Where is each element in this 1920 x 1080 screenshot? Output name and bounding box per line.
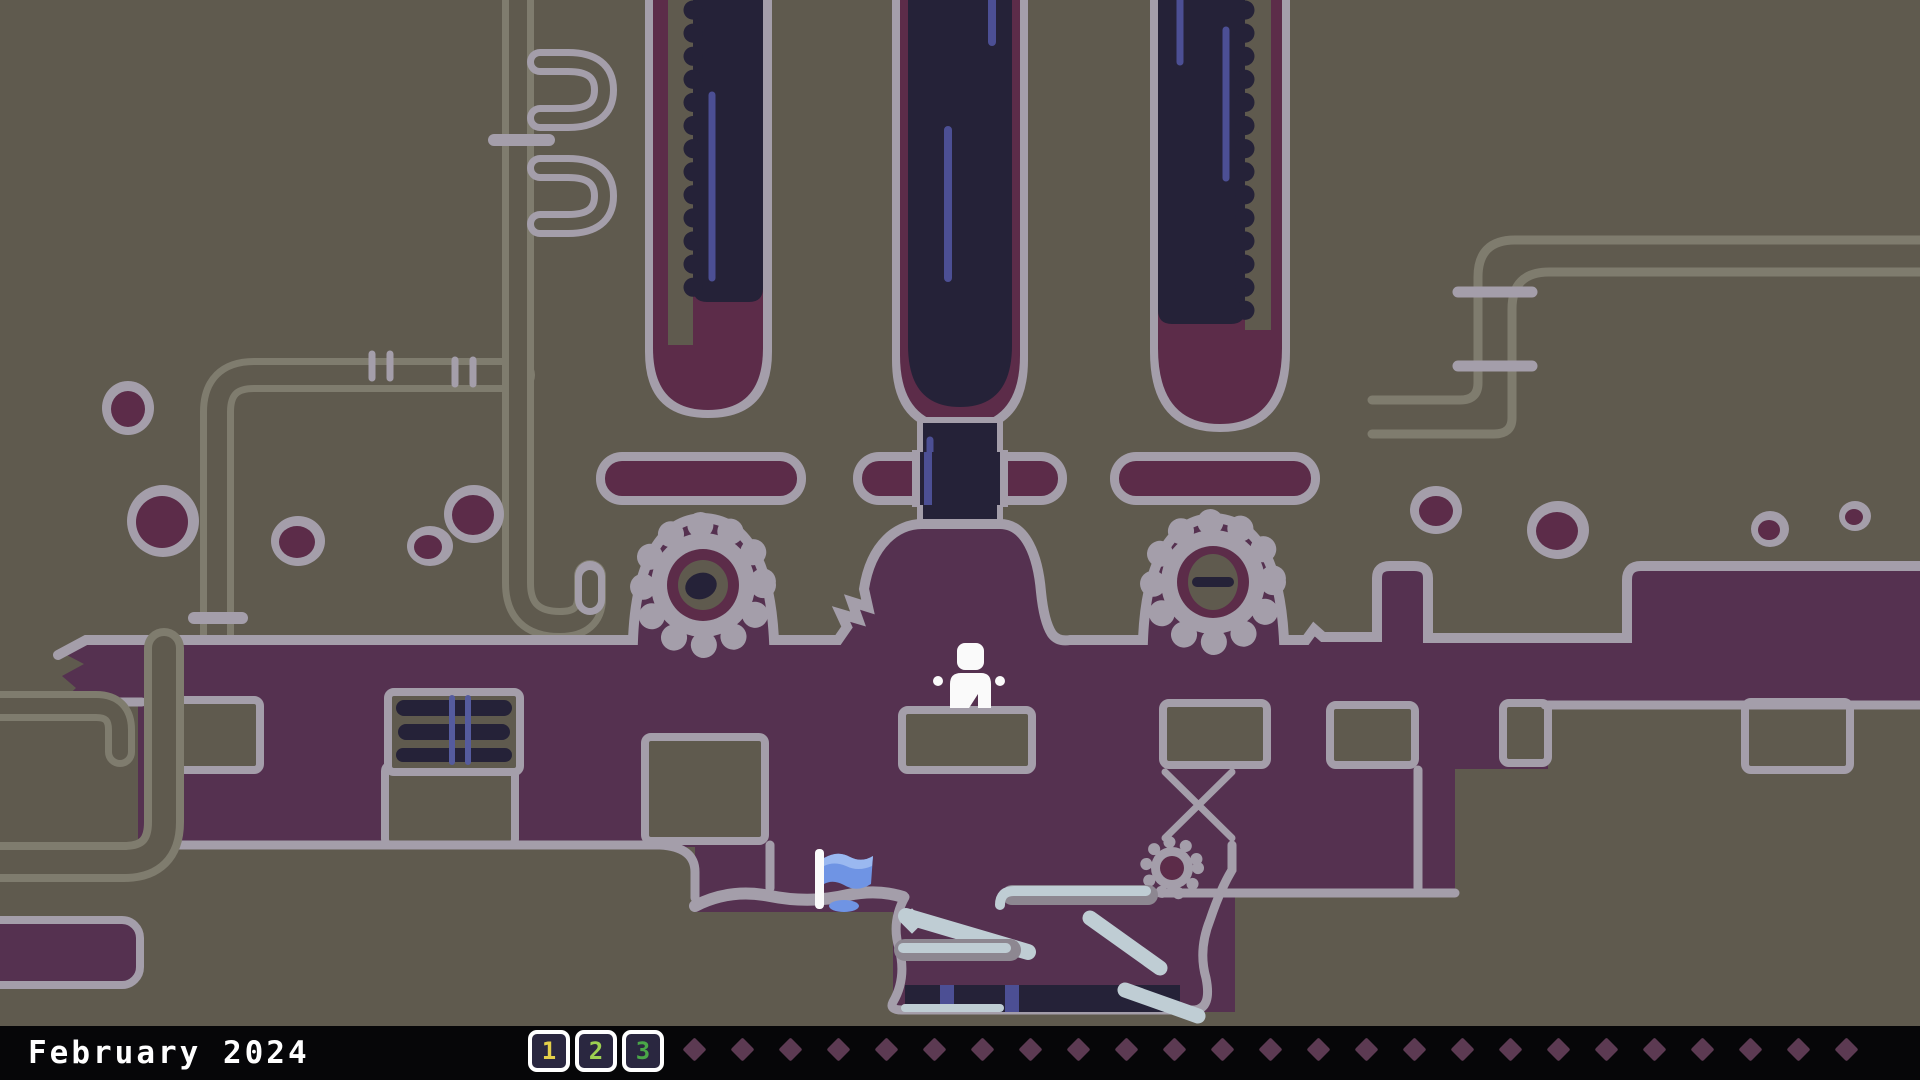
month-label: February 2024 <box>28 1035 310 1071</box>
day-badge-3[interactable]: 3 <box>622 1030 664 1072</box>
piston-pillar-right <box>1150 0 1290 432</box>
future-day-diamond <box>922 1037 946 1061</box>
future-day-diamond <box>1066 1037 1090 1061</box>
future-day-diamond <box>1450 1037 1474 1061</box>
future-day-diamond <box>1834 1037 1858 1061</box>
future-day-diamond <box>1018 1037 1042 1061</box>
future-day-diamond <box>1258 1037 1282 1061</box>
future-day-diamond <box>1738 1037 1762 1061</box>
future-day-diamond <box>682 1037 706 1061</box>
piston-pillar-left <box>645 0 772 418</box>
slot-lozenges <box>596 450 1320 507</box>
future-day-diamond <box>826 1037 850 1061</box>
future-day-diamond <box>1786 1037 1810 1061</box>
striped-machine-box <box>388 692 520 772</box>
day-badge-1[interactable]: 1 <box>528 1030 570 1072</box>
game-scene <box>0 0 1920 1026</box>
future-day-diamond <box>1354 1037 1378 1061</box>
future-day-diamond <box>778 1037 802 1061</box>
game-window: February 2024 123 <box>0 0 1920 1080</box>
day-badge-2[interactable]: 2 <box>575 1030 617 1072</box>
future-day-diamond <box>730 1037 754 1061</box>
future-day-diamond <box>1210 1037 1234 1061</box>
future-day-diamond <box>1162 1037 1186 1061</box>
future-day-diamond <box>970 1037 994 1061</box>
future-day-diamond <box>1114 1037 1138 1061</box>
future-day-diamond <box>1306 1037 1330 1061</box>
future-day-diamond <box>1546 1037 1570 1061</box>
future-day-diamond <box>1642 1037 1666 1061</box>
future-day-diamond <box>1594 1037 1618 1061</box>
future-day-diamond <box>1498 1037 1522 1061</box>
future-day-diamond <box>1402 1037 1426 1061</box>
status-bar: February 2024 123 <box>0 1026 1920 1080</box>
future-day-diamond <box>1690 1037 1714 1061</box>
future-day-diamond <box>874 1037 898 1061</box>
